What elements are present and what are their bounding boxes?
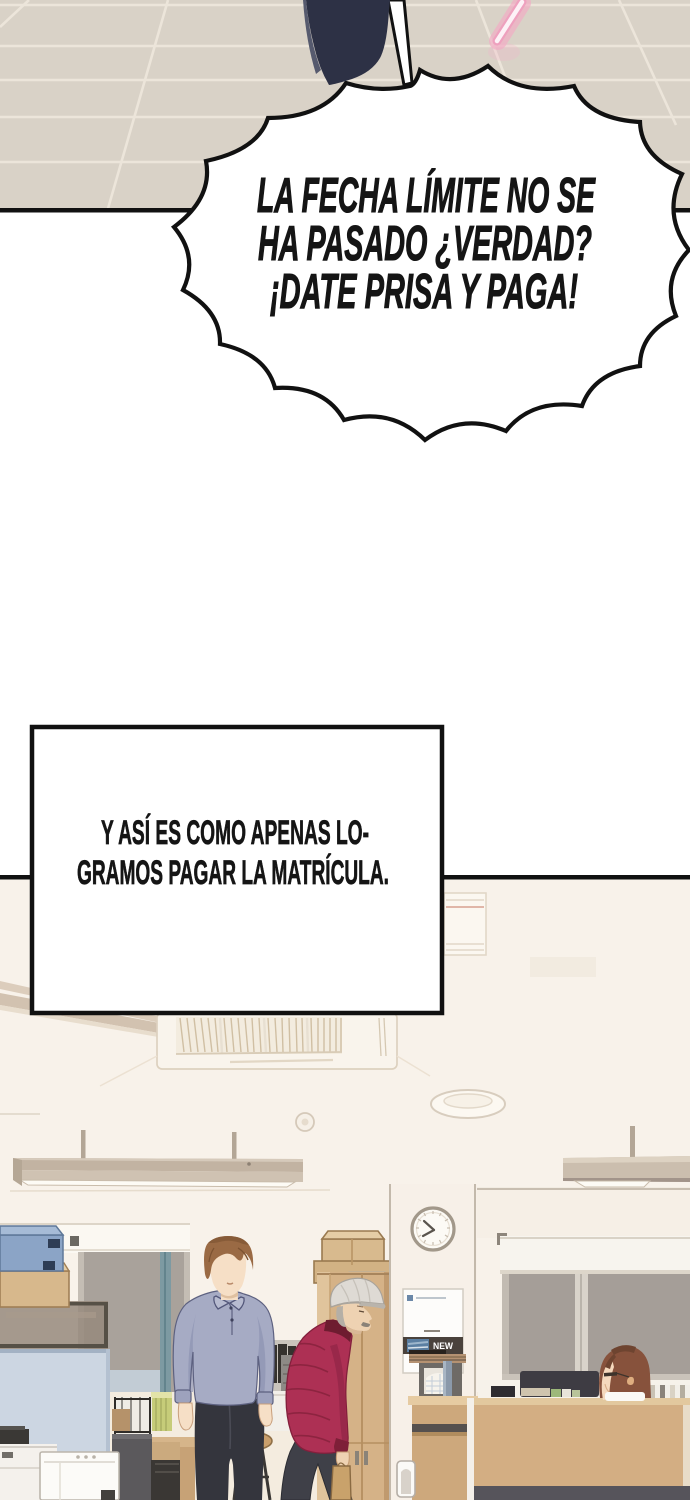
svg-text:¡DATE PRISA Y PAGA!: ¡DATE PRISA Y PAGA! xyxy=(270,265,578,319)
svg-text:GRAMOS PAGAR LA MATRÍCULA.: GRAMOS PAGAR LA MATRÍCULA. xyxy=(77,854,389,892)
svg-text:Y ASÍ ES COMO APENAS LO-: Y ASÍ ES COMO APENAS LO- xyxy=(101,814,369,852)
svg-text:LA FECHA LÍMITE NO SE: LA FECHA LÍMITE NO SE xyxy=(257,169,596,223)
svg-text:HA PASADO ¿VERDAD?: HA PASADO ¿VERDAD? xyxy=(258,217,592,271)
